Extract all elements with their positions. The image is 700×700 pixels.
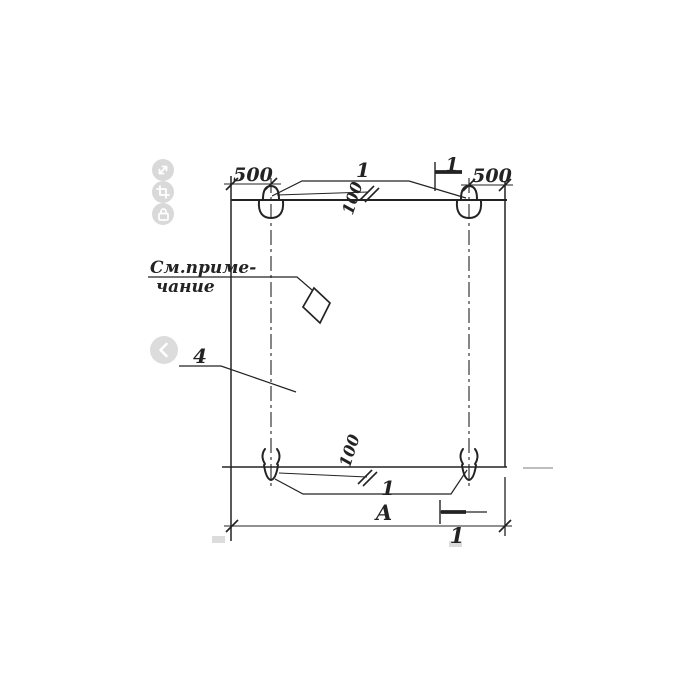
dim-text-500-right: 500 — [472, 165, 512, 187]
dim-text-100-bottom: 100 — [335, 432, 363, 470]
dim-text-100-top: 100 — [338, 179, 366, 217]
bottom-loops-leader — [275, 470, 467, 494]
bottom-left-loop-arc — [277, 449, 280, 464]
leader-lines — [148, 181, 467, 494]
callout-top-loops: 1 — [356, 158, 370, 182]
technical-drawing-page: 500 500 100 100 А 1 1 1 1 4 См.приме- ча… — [0, 0, 700, 700]
crop-icon — [152, 181, 174, 203]
lock-icon — [152, 203, 174, 225]
previous-image-button[interactable] — [150, 336, 178, 364]
callout-item-4: 4 — [193, 344, 207, 368]
dim-line-100-bottom — [279, 473, 367, 477]
annotation-texts: 500 500 100 100 А 1 1 1 1 4 См.приме- ча… — [150, 154, 512, 548]
artifact-blob — [212, 536, 225, 543]
dim-text-width: А — [373, 500, 392, 525]
item-4-leader — [179, 366, 296, 392]
note-text-line2: чание — [156, 277, 215, 297]
dim-text-500-left: 500 — [233, 164, 273, 186]
panel-drawing: 500 500 100 100 А 1 1 1 1 4 См.приме- ча… — [0, 0, 700, 700]
lock-button[interactable] — [152, 203, 174, 225]
top-loops-leader — [272, 181, 466, 198]
bottom-right-loop-arc — [461, 449, 464, 464]
dim-tick — [363, 472, 377, 486]
note-text-line1: См.приме- — [150, 258, 256, 278]
crop-button[interactable] — [152, 181, 174, 203]
panel-outline — [222, 176, 507, 541]
callout-bottom-loops: 1 — [381, 476, 395, 500]
loop-centerlines — [271, 178, 469, 486]
section-number-bottom: 1 — [450, 523, 465, 548]
lifting-loops — [259, 186, 481, 480]
fullscreen-button[interactable] — [152, 159, 174, 181]
position-diamond — [303, 288, 330, 323]
bottom-left-loop-arc — [263, 449, 266, 464]
section-number-top: 1 — [445, 154, 458, 176]
expand-icon — [152, 159, 174, 181]
chevron-left-icon — [150, 336, 178, 364]
bottom-right-loop-arc — [475, 449, 478, 464]
